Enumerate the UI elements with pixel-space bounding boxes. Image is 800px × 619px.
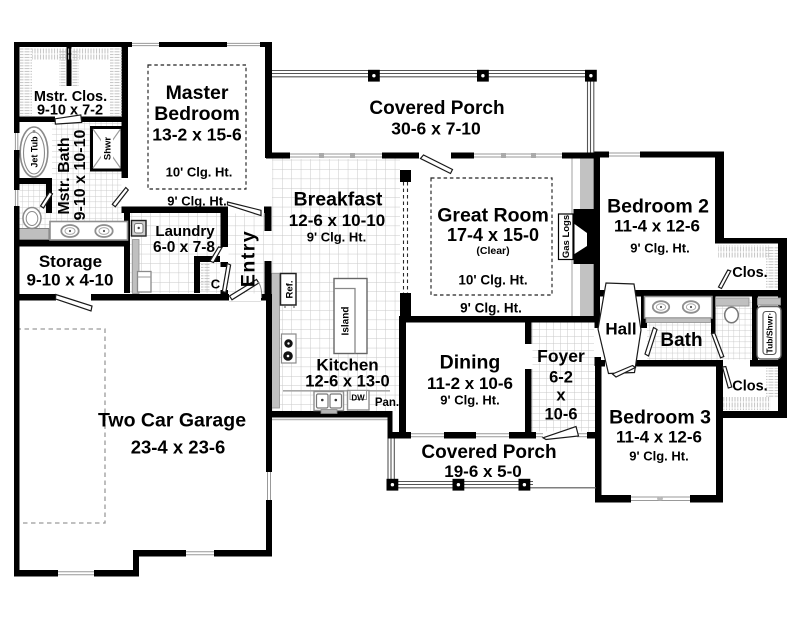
svg-text:Great Room: Great Room: [437, 205, 549, 227]
svg-text:9-10 x 7-2: 9-10 x 7-2: [37, 103, 103, 119]
svg-text:11-4 x 12-6: 11-4 x 12-6: [614, 217, 700, 236]
svg-text:Pan.: Pan.: [375, 397, 399, 409]
svg-text:23-4 x 23-6: 23-4 x 23-6: [131, 437, 226, 458]
svg-text:9' Clg. Ht.: 9' Clg. Ht.: [440, 393, 499, 408]
svg-text:11-2 x 10-6: 11-2 x 10-6: [427, 374, 513, 393]
svg-text:Covered Porch: Covered Porch: [369, 98, 504, 119]
svg-text:30-6 x 7-10: 30-6 x 7-10: [391, 119, 481, 139]
svg-text:Hall: Hall: [605, 320, 636, 339]
svg-text:Shwr: Shwr: [102, 137, 113, 161]
svg-text:10' Clg. Ht.: 10' Clg. Ht.: [166, 165, 233, 180]
svg-text:Tub/Shwr·: Tub/Shwr·: [765, 313, 775, 354]
svg-text:Storage: Storage: [39, 252, 102, 271]
svg-text:Dining: Dining: [440, 352, 501, 374]
svg-text:Bath: Bath: [660, 330, 702, 351]
svg-text:Foyer: Foyer: [537, 346, 585, 366]
svg-text:C: C: [211, 277, 221, 292]
svg-text:12-6 x 10-10: 12-6 x 10-10: [289, 211, 385, 230]
svg-text:9' Clg. Ht.: 9' Clg. Ht.: [630, 241, 689, 256]
svg-text:Gas Logs: Gas Logs: [561, 215, 572, 258]
svg-text:12-6 x 13-0: 12-6 x 13-0: [305, 373, 389, 391]
svg-text:9' Clg. Ht.: 9' Clg. Ht.: [307, 230, 366, 245]
svg-text:Laundry: Laundry: [155, 223, 215, 240]
svg-text:10-6: 10-6: [544, 406, 577, 424]
svg-text:Breakfast: Breakfast: [294, 189, 383, 211]
svg-text:x: x: [556, 387, 566, 405]
svg-text:17-4 x 15-0: 17-4 x 15-0: [447, 225, 539, 245]
svg-text:Jet Tub: Jet Tub: [30, 136, 40, 168]
svg-text:9' Clg. Ht.: 9' Clg. Ht.: [167, 194, 226, 209]
svg-text:6-2: 6-2: [549, 369, 573, 387]
svg-text:Master: Master: [166, 82, 229, 104]
svg-text:6-0 x 7-8: 6-0 x 7-8: [153, 239, 215, 256]
svg-text:Bedroom 3: Bedroom 3: [609, 407, 711, 429]
svg-text:Bedroom: Bedroom: [154, 103, 240, 125]
svg-text:Covered Porch: Covered Porch: [421, 442, 556, 463]
svg-text:11-4 x 12-6: 11-4 x 12-6: [616, 428, 702, 447]
svg-text:Two Car Garage: Two Car Garage: [98, 410, 246, 432]
svg-text:9' Clg. Ht.: 9' Clg. Ht.: [629, 449, 688, 464]
svg-text:(Clear): (Clear): [476, 245, 509, 257]
svg-text:10' Clg. Ht.: 10' Clg. Ht.: [458, 273, 527, 288]
svg-text:9-10 x 10-10: 9-10 x 10-10: [72, 130, 89, 221]
svg-text:Island: Island: [341, 307, 352, 336]
svg-text:Bedroom 2: Bedroom 2: [607, 196, 709, 218]
svg-text:Mstr. Bath: Mstr. Bath: [56, 137, 73, 214]
svg-text:9-10 x 4-10: 9-10 x 4-10: [27, 271, 114, 290]
svg-text:Clos.: Clos.: [732, 379, 767, 395]
svg-text:DW: DW: [351, 394, 365, 403]
svg-text:13-2 x 15-6: 13-2 x 15-6: [152, 125, 242, 145]
svg-text:19-6 x 5-0: 19-6 x 5-0: [444, 462, 522, 481]
svg-text:Clos.: Clos.: [732, 265, 767, 281]
svg-text:9' Clg. Ht.: 9' Clg. Ht.: [460, 301, 522, 316]
svg-text:Entry: Entry: [237, 230, 259, 287]
svg-text:Ref.: Ref.: [284, 281, 295, 299]
